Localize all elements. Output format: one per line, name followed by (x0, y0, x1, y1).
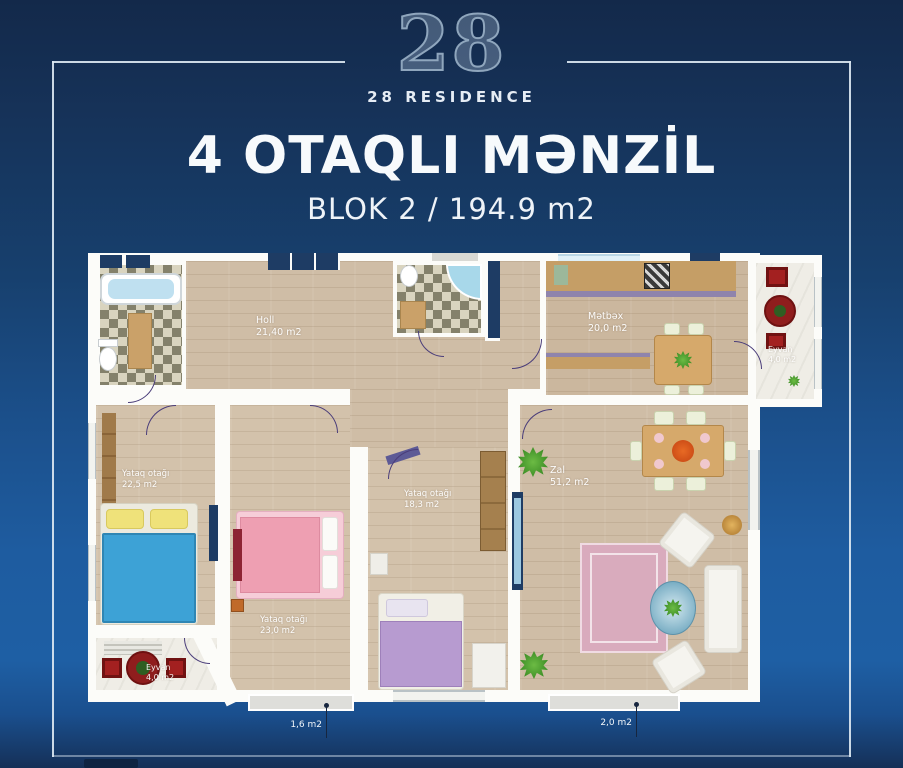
window-bottom-center (393, 690, 485, 702)
hall-closet (268, 253, 340, 270)
page-title: 4 OTAQLI MƏNZİL (0, 126, 903, 186)
page-subtitle: BLOK 2 / 194.9 m2 (0, 192, 903, 226)
pillow-yellow-1 (106, 509, 144, 529)
measure-line-left (326, 706, 327, 738)
vanity-cabinet-2 (400, 301, 426, 329)
dining-chair-3 (654, 477, 674, 491)
toilet (98, 339, 118, 347)
rug-pink-inner (590, 553, 658, 643)
bathtub-basin (108, 279, 174, 299)
label-yataq-mid: Yataq otağı23,0 m2 (260, 615, 307, 637)
window-balcony-right-1 (814, 277, 822, 327)
bed-blue-blanket (102, 533, 196, 623)
kitchen-counter-edge (546, 291, 736, 297)
footer-fragment (84, 759, 138, 768)
measure-label-right: 2,0 m2 (590, 718, 632, 728)
pillow-yellow-2 (150, 509, 188, 529)
cutting-board (554, 265, 568, 285)
floor-plan: Holl21,40 m2 Mətbəx20,0 m2 Eyvan4,0 m2 Y… (88, 253, 822, 753)
plate-4 (700, 459, 710, 469)
brand-name: 28 RESIDENCE (0, 88, 903, 106)
stool-orange (231, 599, 244, 612)
desk-white (472, 643, 506, 688)
side-table-gold (722, 515, 742, 535)
label-eyvan-left: Eyvan4,0 m2 (146, 663, 174, 684)
dining-chair-1 (654, 411, 674, 425)
balcony-right-chair-1 (766, 267, 788, 287)
balcony-left-chair-1 (102, 658, 122, 678)
plate-3 (654, 459, 664, 469)
measure-line-right (636, 705, 637, 737)
bed-single-blanket (380, 621, 462, 687)
bathroom-window-block-2 (126, 255, 150, 268)
plate-2 (700, 433, 710, 443)
balcony-right-table-plant (774, 305, 786, 317)
tv-screen (514, 498, 521, 584)
tv-stand-left-bedroom (209, 505, 218, 561)
logo-28: 28 (0, 4, 903, 84)
dining-chair-5 (630, 441, 642, 461)
dining-chair-6 (724, 441, 736, 461)
dining-centerpiece (672, 440, 694, 462)
stove (644, 263, 670, 289)
hall-cabinet (485, 261, 500, 341)
label-yataq-small: Yataq otağı18,3 m2 (404, 489, 451, 511)
corridor-floor (350, 389, 508, 447)
kitchen-chair-4 (688, 385, 704, 395)
pillow-white-1 (322, 517, 338, 551)
label-zal: Zal51,2 m2 (550, 465, 589, 490)
kitchen-chair-2 (688, 323, 704, 335)
window-left-2 (88, 545, 96, 601)
poster-page: { "brand": { "logo_number": "28", "name"… (0, 0, 903, 768)
vanity-cabinet (128, 313, 152, 369)
wardrobe-left (102, 413, 116, 505)
window-ledge-left (248, 694, 354, 711)
window-living-right (748, 450, 760, 530)
toilet-2 (400, 265, 418, 287)
bed-single-pillow (386, 599, 428, 617)
kitchen-counter (546, 261, 736, 291)
bench-maroon (233, 529, 242, 581)
kitchen-chair-3 (664, 385, 680, 395)
dining-chair-2 (686, 411, 706, 425)
dining-chair-4 (686, 477, 706, 491)
nightstand-white (370, 553, 388, 575)
plate-1 (654, 433, 664, 443)
bed-pink-blanket (240, 517, 320, 593)
kitchen-chair-1 (664, 323, 680, 335)
bathroom-window-block-1 (100, 255, 122, 268)
label-holl: Holl21,40 m2 (256, 315, 302, 340)
window-balcony-right-2 (814, 339, 822, 389)
entry-step (432, 253, 478, 261)
toilet-bowl (99, 347, 117, 371)
sofa (704, 565, 742, 653)
pillow-white-2 (322, 555, 338, 589)
wardrobe-small-bedroom (480, 451, 506, 551)
window-left-1 (88, 423, 96, 479)
frame-bottom (52, 755, 851, 757)
label-eyvan-right: Eyvan4,0 m2 (768, 345, 796, 366)
kitchen-bench (546, 353, 650, 369)
label-metbex: Mətbəx20,0 m2 (588, 311, 627, 336)
window-ledge-right (548, 694, 680, 711)
measure-label-left: 1,6 m2 (280, 720, 322, 730)
label-yataq-left: Yataq otağı22,5 m2 (122, 469, 169, 491)
